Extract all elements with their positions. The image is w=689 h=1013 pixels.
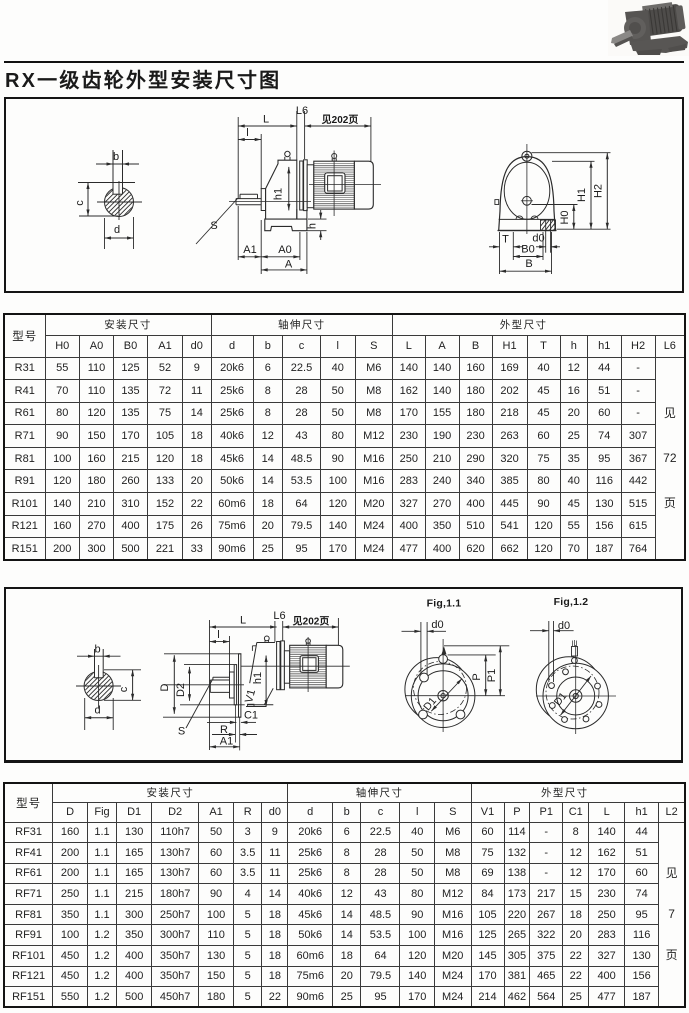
- svg-text:P1: P1: [486, 669, 498, 682]
- svg-text:L6: L6: [296, 105, 308, 117]
- svg-text:L: L: [240, 615, 246, 627]
- svg-text:V1: V1: [243, 688, 258, 704]
- svg-text:H0: H0: [559, 210, 571, 224]
- svg-text:l: l: [246, 127, 248, 139]
- svg-text:D2: D2: [175, 683, 187, 697]
- svg-text:P: P: [471, 673, 483, 680]
- svg-text:见202页: 见202页: [293, 616, 330, 628]
- svg-text:H1: H1: [576, 188, 588, 202]
- svg-text:Fig,1.2: Fig,1.2: [554, 596, 589, 608]
- svg-text:l: l: [217, 629, 219, 641]
- svg-text:见202页: 见202页: [322, 114, 359, 126]
- svg-text:h: h: [307, 223, 319, 229]
- svg-text:S: S: [178, 726, 185, 738]
- svg-text:d: d: [94, 705, 100, 717]
- svg-text:c: c: [74, 200, 86, 206]
- svg-text:L6: L6: [273, 610, 285, 622]
- svg-text:c: c: [118, 686, 130, 692]
- svg-text:Fig,1.1: Fig,1.1: [427, 598, 462, 610]
- svg-text:A1: A1: [243, 244, 256, 256]
- svg-text:A0: A0: [278, 244, 291, 256]
- svg-text:b: b: [94, 644, 100, 656]
- svg-text:b: b: [113, 151, 119, 163]
- svg-text:T: T: [502, 234, 509, 246]
- svg-text:B0: B0: [521, 244, 534, 256]
- svg-text:d0: d0: [431, 619, 443, 631]
- svg-text:C1: C1: [244, 710, 258, 722]
- svg-text:h1: h1: [252, 672, 264, 684]
- svg-text:H2: H2: [593, 184, 605, 198]
- svg-text:S: S: [210, 220, 217, 232]
- svg-text:A: A: [285, 259, 293, 271]
- svg-text:d: d: [114, 224, 120, 236]
- svg-text:R: R: [220, 724, 228, 736]
- svg-text:A1: A1: [220, 736, 233, 748]
- svg-text:L: L: [263, 114, 269, 126]
- svg-text:h1: h1: [273, 188, 285, 200]
- svg-text:D: D: [159, 683, 171, 691]
- svg-text:B: B: [525, 258, 532, 270]
